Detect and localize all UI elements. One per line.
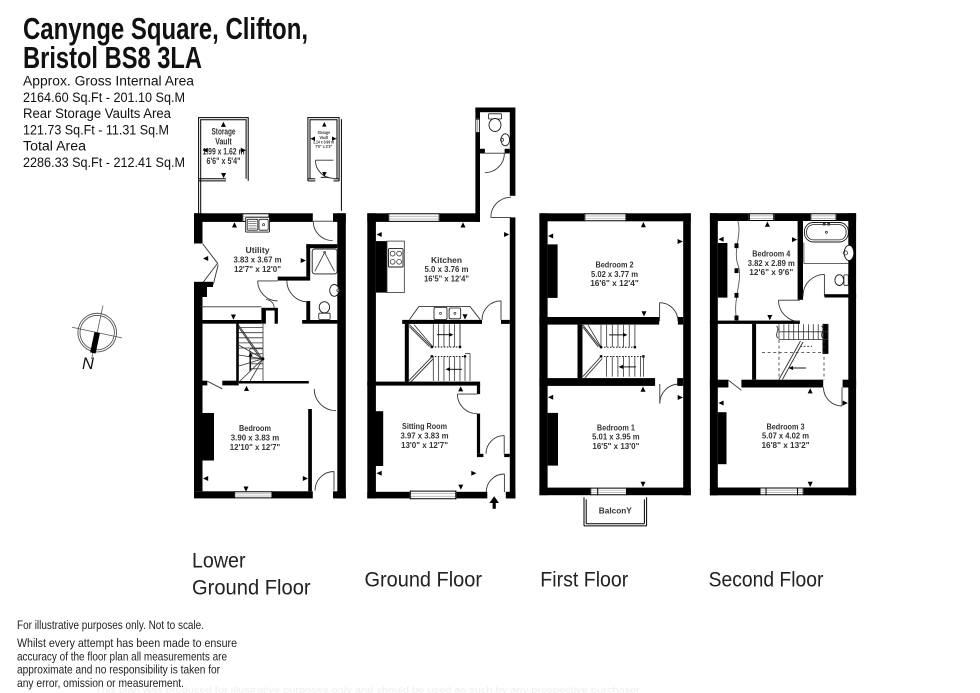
svg-text:Ground Floor: Ground Floor bbox=[365, 567, 483, 591]
svg-text:1.99 x 1.62 m: 1.99 x 1.62 m bbox=[203, 146, 245, 156]
svg-text:Bristol BS8 3LA: Bristol BS8 3LA bbox=[23, 41, 202, 75]
svg-text:13'0" x 12'7": 13'0" x 12'7" bbox=[401, 440, 448, 450]
svg-text:2286.33 Sq.Ft - 212.41 Sq.M: 2286.33 Sq.Ft - 212.41 Sq.M bbox=[23, 155, 185, 171]
svg-text:Second Floor: Second Floor bbox=[709, 567, 824, 591]
svg-text:7'0" x 3'3": 7'0" x 3'3" bbox=[315, 144, 332, 149]
svg-text:Total Area: Total Area bbox=[23, 139, 86, 155]
svg-text:approximate and no responsibil: approximate and no responsibility is tak… bbox=[17, 663, 220, 677]
svg-text:12'7" x 12'0": 12'7" x 12'0" bbox=[234, 264, 281, 274]
svg-text:Storage: Storage bbox=[212, 127, 236, 137]
svg-text:Whilst every attempt has been: Whilst every attempt has been made to en… bbox=[17, 636, 237, 650]
svg-text:16'6" x 12'4": 16'6" x 12'4" bbox=[590, 278, 639, 288]
svg-text:121.73 Sq.Ft - 11.31 Sq.M: 121.73 Sq.Ft - 11.31 Sq.M bbox=[23, 122, 169, 138]
svg-text:12'6" x 9'6": 12'6" x 9'6" bbox=[749, 267, 793, 277]
svg-text:This plan was produced for ill: This plan was produced for illustrative … bbox=[95, 686, 640, 693]
svg-text:BalconY: BalconY bbox=[599, 506, 632, 516]
svg-text:First Floor: First Floor bbox=[540, 567, 628, 591]
svg-text:Approx. Gross Internal Area: Approx. Gross Internal Area bbox=[23, 74, 194, 90]
svg-text:accuracy of the floor plan all: accuracy of the floor plan all measureme… bbox=[17, 649, 227, 663]
svg-text:16'8" x 13'2": 16'8" x 13'2" bbox=[762, 440, 810, 450]
svg-text:6'6" x 5'4": 6'6" x 5'4" bbox=[207, 156, 241, 166]
svg-text:Lower: Lower bbox=[192, 549, 246, 573]
svg-text:Vault: Vault bbox=[215, 136, 232, 146]
svg-text:N: N bbox=[82, 355, 94, 373]
svg-text:For illustrative purposes only: For illustrative purposes only. Not to s… bbox=[17, 618, 204, 632]
svg-text:Rear Storage Vaults Area: Rear Storage Vaults Area bbox=[23, 106, 171, 122]
svg-text:12'10" x 12'7": 12'10" x 12'7" bbox=[230, 442, 280, 452]
svg-text:2164.60 Sq.Ft - 201.10 Sq.M: 2164.60 Sq.Ft - 201.10 Sq.M bbox=[23, 90, 185, 106]
svg-text:16'5" x 13'0": 16'5" x 13'0" bbox=[592, 441, 639, 451]
svg-text:Ground Floor: Ground Floor bbox=[192, 576, 311, 600]
svg-text:16'5" x 12'4": 16'5" x 12'4" bbox=[424, 273, 469, 283]
